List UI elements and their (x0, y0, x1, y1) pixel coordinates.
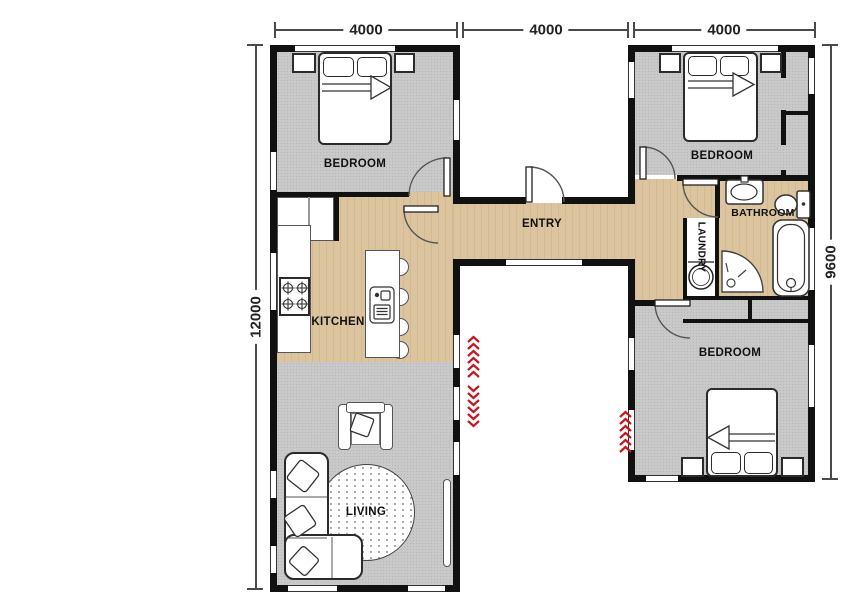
floor-hall-right (635, 179, 683, 307)
nightstand-icon (781, 457, 804, 477)
pillow-icon (711, 452, 741, 474)
dimension-tick (274, 22, 276, 38)
tv-icon (443, 479, 451, 567)
window (453, 442, 460, 475)
nightstand-icon (760, 53, 782, 73)
dimension-tick (456, 22, 458, 38)
window (453, 335, 460, 368)
wall (781, 170, 786, 176)
window (808, 228, 815, 290)
wall (270, 45, 277, 592)
dimension-tick (247, 588, 263, 590)
chevron-down-icon (468, 386, 479, 426)
dimension-tick (627, 22, 629, 38)
wall (635, 300, 655, 306)
wall (715, 181, 720, 218)
window (288, 585, 337, 592)
nightstand-icon (292, 53, 316, 73)
room-label-living: LIVING (346, 506, 386, 518)
window (646, 475, 678, 482)
dimension-label-right: 9600 (823, 239, 840, 284)
wall (715, 218, 719, 296)
room-label-bedroom-top-right: BEDROOM (691, 150, 753, 162)
wall (453, 260, 460, 592)
wall (562, 197, 635, 204)
armchair-back-icon (346, 402, 385, 413)
door-icon (529, 167, 564, 202)
wall (453, 259, 506, 266)
wall (748, 296, 752, 323)
window (628, 338, 635, 370)
wall (683, 296, 810, 300)
stove-icon (279, 277, 310, 316)
room-label-entry: ENTRY (522, 218, 562, 230)
wall (683, 319, 810, 323)
window (270, 152, 277, 190)
window (295, 45, 395, 52)
dimension-tick (462, 22, 464, 38)
nightstand-icon (659, 53, 681, 73)
wall (453, 197, 526, 204)
pillow-icon (744, 452, 773, 474)
dimension-label-top-left: 4000 (343, 22, 388, 39)
dimension-label-left: 12000 (248, 290, 265, 344)
chevron-up-icon (468, 337, 479, 377)
sofa-icon (284, 534, 363, 580)
window (270, 471, 277, 498)
window (408, 585, 445, 592)
room-label-bedroom-top-left: BEDROOM (324, 158, 386, 170)
floor-entry-corridor (453, 203, 635, 260)
armchair-seat-icon (351, 413, 380, 445)
window (628, 62, 635, 98)
window (270, 546, 277, 573)
dimension-tick (822, 478, 838, 480)
pillow-icon (357, 57, 387, 77)
window (628, 410, 635, 450)
wall (781, 111, 810, 115)
wall (677, 175, 810, 181)
pillow-icon (323, 57, 354, 77)
room-label-laundry: LAUNDRY (696, 222, 707, 273)
wall (334, 192, 339, 241)
dimension-tick (814, 22, 816, 38)
room-label-bathroom: BATHROOM (731, 207, 794, 219)
dimension-tick (633, 22, 635, 38)
room-label-bedroom-bottom-right: BEDROOM (699, 347, 761, 359)
window (453, 100, 460, 140)
kitchen-island-icon (365, 250, 400, 358)
pillow-icon (720, 56, 749, 76)
nightstand-icon (681, 457, 704, 477)
window (672, 45, 778, 52)
dimension-tick (822, 44, 838, 46)
window (506, 259, 582, 266)
wall (781, 110, 786, 145)
dimension-label-top-right: 4000 (701, 22, 746, 39)
nightstand-icon (394, 53, 415, 73)
dimension-tick (247, 44, 263, 46)
window (270, 253, 277, 310)
room-label-kitchen: KITCHEN (311, 316, 364, 328)
floor-plan: BEDROOM KITCHEN LIVING ENTRY BEDROOM BAT… (0, 0, 849, 600)
window (808, 58, 815, 94)
window (453, 387, 460, 420)
dimension-label-top-middle: 4000 (523, 22, 568, 39)
pillow-icon (688, 56, 717, 76)
window (808, 345, 815, 407)
door-leaf (526, 167, 532, 202)
